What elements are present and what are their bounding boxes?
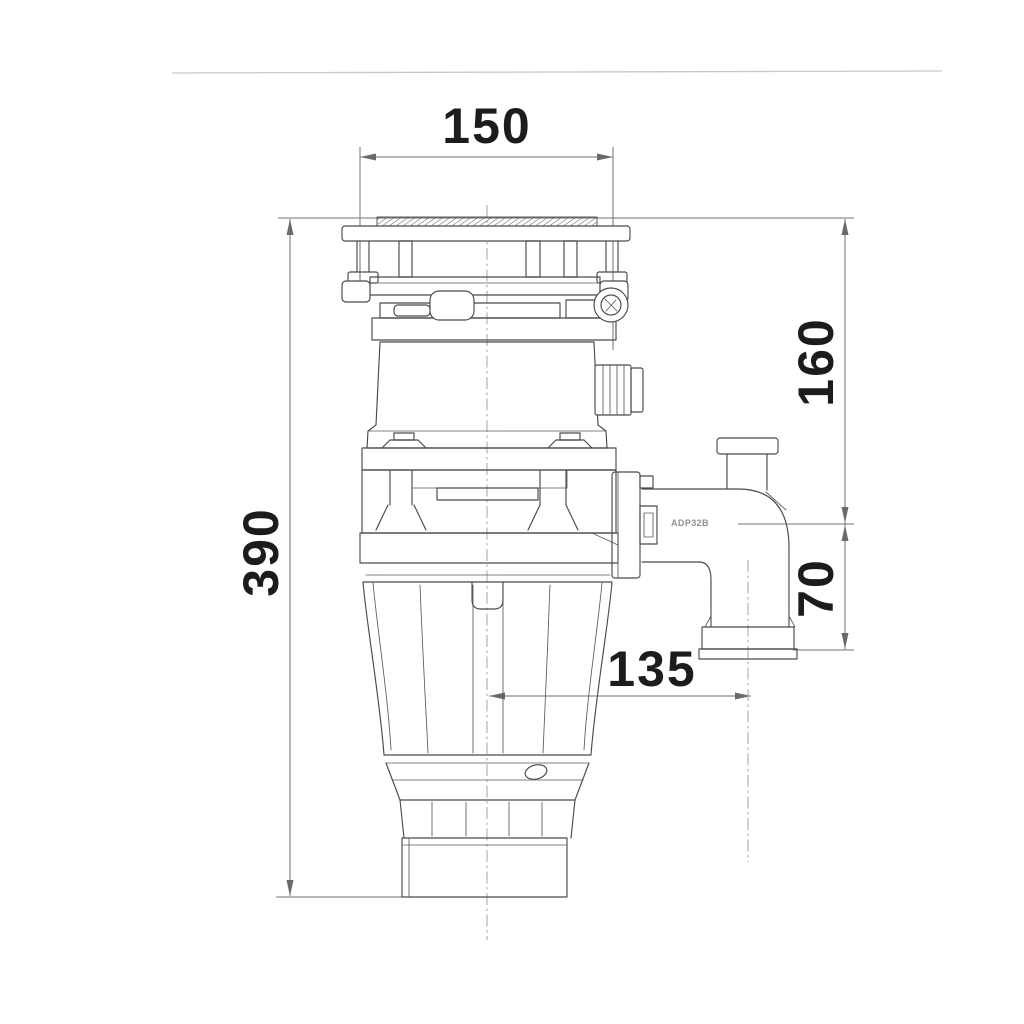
part-code-label: ADP32B <box>671 518 709 528</box>
dim-135-label: 135 <box>607 641 696 697</box>
clamp-ring <box>362 433 616 470</box>
mounting-assembly <box>342 241 628 302</box>
dim-390-label: 390 <box>233 507 289 596</box>
grind-chamber <box>362 470 616 533</box>
scan-artifact-line <box>172 71 942 73</box>
reset-slot <box>472 582 503 609</box>
lock-ring <box>372 288 628 340</box>
outlet-elbow <box>612 438 797 659</box>
dim-150-label: 150 <box>442 98 531 154</box>
stub-flange <box>717 438 778 454</box>
dimension-lines <box>287 154 849 897</box>
bottom-cap <box>402 838 567 897</box>
dishwasher-inlet <box>595 365 643 415</box>
technical-drawing: 150 390 160 70 135 ADP32B <box>0 0 1024 1024</box>
dim-160-label: 160 <box>788 317 844 406</box>
vent-oval <box>524 763 549 782</box>
disposal-dimension-diagram: 150 390 160 70 135 ADP32B <box>0 0 1024 1024</box>
dimension-labels: 150 390 160 70 135 <box>233 98 844 697</box>
sink-flange <box>342 217 630 241</box>
motor-housing <box>363 575 612 897</box>
lower-band <box>360 533 618 563</box>
dim-70-label: 70 <box>788 558 844 618</box>
extension-lines <box>276 147 854 897</box>
